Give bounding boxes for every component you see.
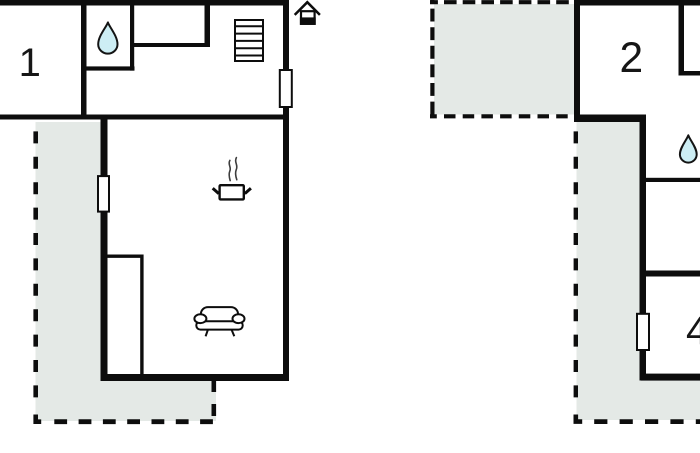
svg-text:4: 4 xyxy=(686,309,700,353)
svg-text:2: 2 xyxy=(619,35,643,82)
svg-text:1: 1 xyxy=(19,41,41,85)
